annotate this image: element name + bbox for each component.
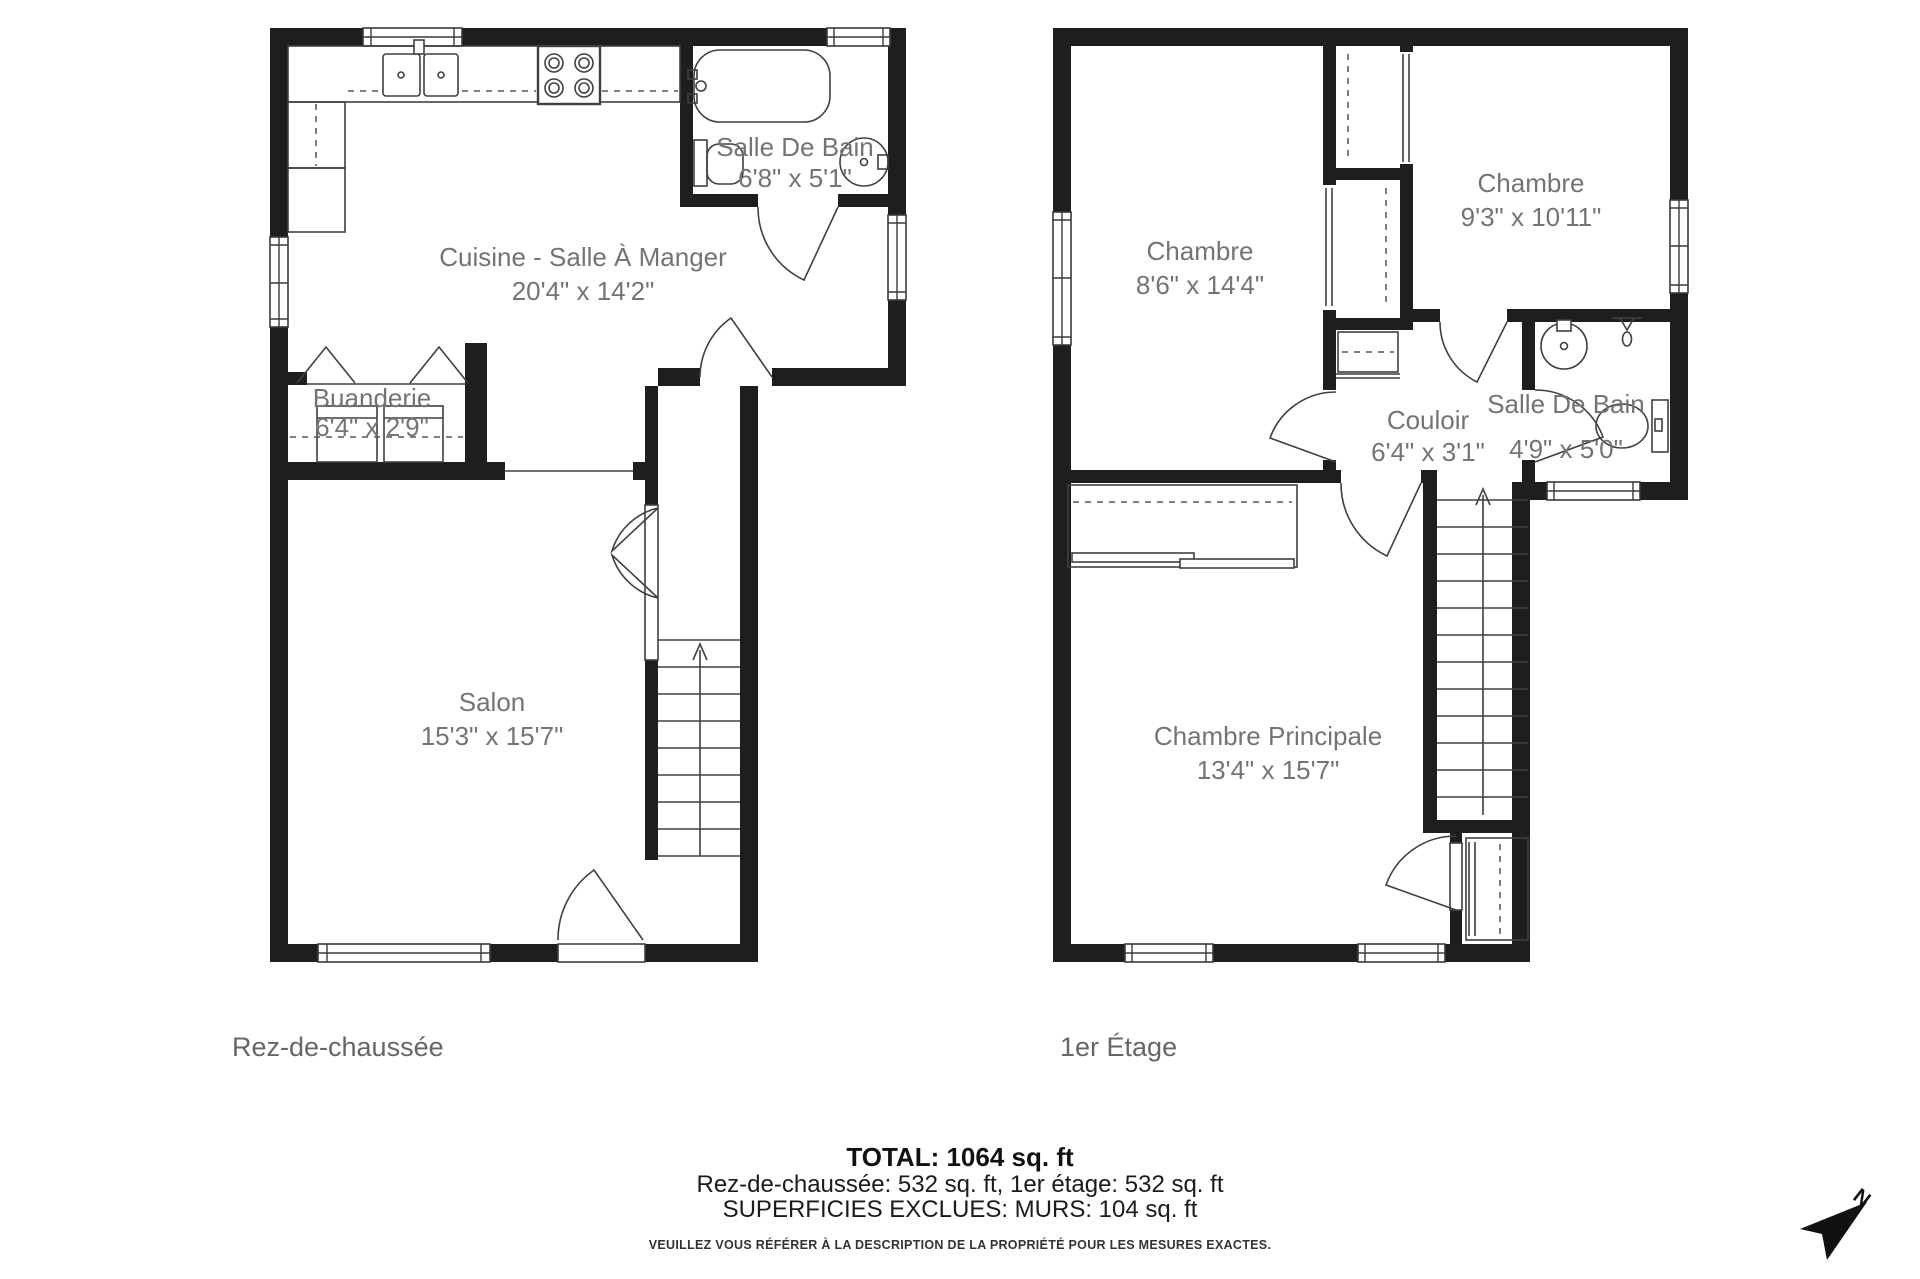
disclaimer-text: VEUILLEZ VOUS RÉFÉRER À LA DESCRIPTION D…	[649, 1237, 1271, 1252]
room-dims: 9'3" x 10'11"	[1461, 202, 1602, 232]
room-dims: 6'8" x 5'1"	[738, 163, 852, 193]
room-name: Chambre	[1478, 168, 1585, 198]
shower-icon	[1612, 318, 1642, 346]
stairs-direction-arrow	[1476, 489, 1490, 815]
room-dims: 4'9" x 5'0"	[1509, 434, 1623, 464]
stairs-direction-arrow	[693, 644, 707, 856]
sink-icon	[1541, 320, 1587, 369]
north-arrow-icon: N	[1800, 1184, 1875, 1260]
first-floor-plan: Chambre 8'6" x 14'4" Chambre 9'3" x 10'1…	[1053, 28, 1688, 1062]
floor-label-ground: Rez-de-chaussée	[232, 1032, 444, 1062]
kitchen-sink-icon	[383, 40, 458, 96]
room-dims: 20'4" x 14'2"	[512, 276, 655, 306]
room-name: Cuisine - Salle À Manger	[439, 242, 727, 272]
room-dims: 8'6" x 14'4"	[1136, 270, 1264, 300]
stairs-up	[658, 640, 740, 856]
room-dims: 6'4" x 2'9"	[315, 412, 429, 442]
master-closet	[1068, 485, 1297, 568]
floorplan-canvas: Cuisine - Salle À Manger 20'4" x 14'2" S…	[0, 0, 1920, 1279]
door-arc	[1386, 836, 1456, 910]
room-name: Salle De Bain	[1487, 389, 1645, 419]
room-dims: 13'4" x 15'7"	[1197, 755, 1340, 785]
entry-door-arc	[558, 870, 643, 940]
door-arc	[1341, 483, 1421, 556]
floor-label-first: 1er Étage	[1060, 1032, 1177, 1062]
ground-floor-plan: Cuisine - Salle À Manger 20'4" x 14'2" S…	[232, 28, 906, 1062]
ground-doors	[558, 194, 838, 962]
floor-areas-text: Rez-de-chaussée: 532 sq. ft, 1er étage: …	[697, 1171, 1224, 1198]
total-area-text: TOTAL: 1064 sq. ft	[846, 1142, 1074, 1172]
room-name: Chambre Principale	[1154, 721, 1382, 751]
door-arc	[758, 207, 838, 280]
kitchen-counter	[288, 46, 680, 232]
excluded-areas-text: SUPERFICIES EXCLUES: MURS: 104 sq. ft	[723, 1196, 1198, 1223]
room-name: Salle De Bain	[716, 132, 874, 162]
room-name: Couloir	[1387, 405, 1470, 435]
summary-block: TOTAL: 1064 sq. ft Rez-de-chaussée: 532 …	[649, 1142, 1271, 1252]
room-dims: 6'4" x 3'1"	[1371, 437, 1485, 467]
bifold-door-icon	[410, 347, 468, 383]
bathtub-icon	[688, 50, 830, 122]
room-name: Chambre	[1147, 236, 1254, 266]
floorplan-page: Cuisine - Salle À Manger 20'4" x 14'2" S…	[0, 0, 1920, 1279]
room-name: Buanderie	[313, 383, 432, 413]
room-name: Salon	[459, 687, 526, 717]
stove-icon	[538, 46, 600, 104]
door-arc	[1440, 322, 1507, 382]
compass-label: N	[1849, 1184, 1875, 1211]
fridge-icon	[288, 168, 345, 232]
room-dims: 15'3" x 15'7"	[421, 721, 564, 751]
